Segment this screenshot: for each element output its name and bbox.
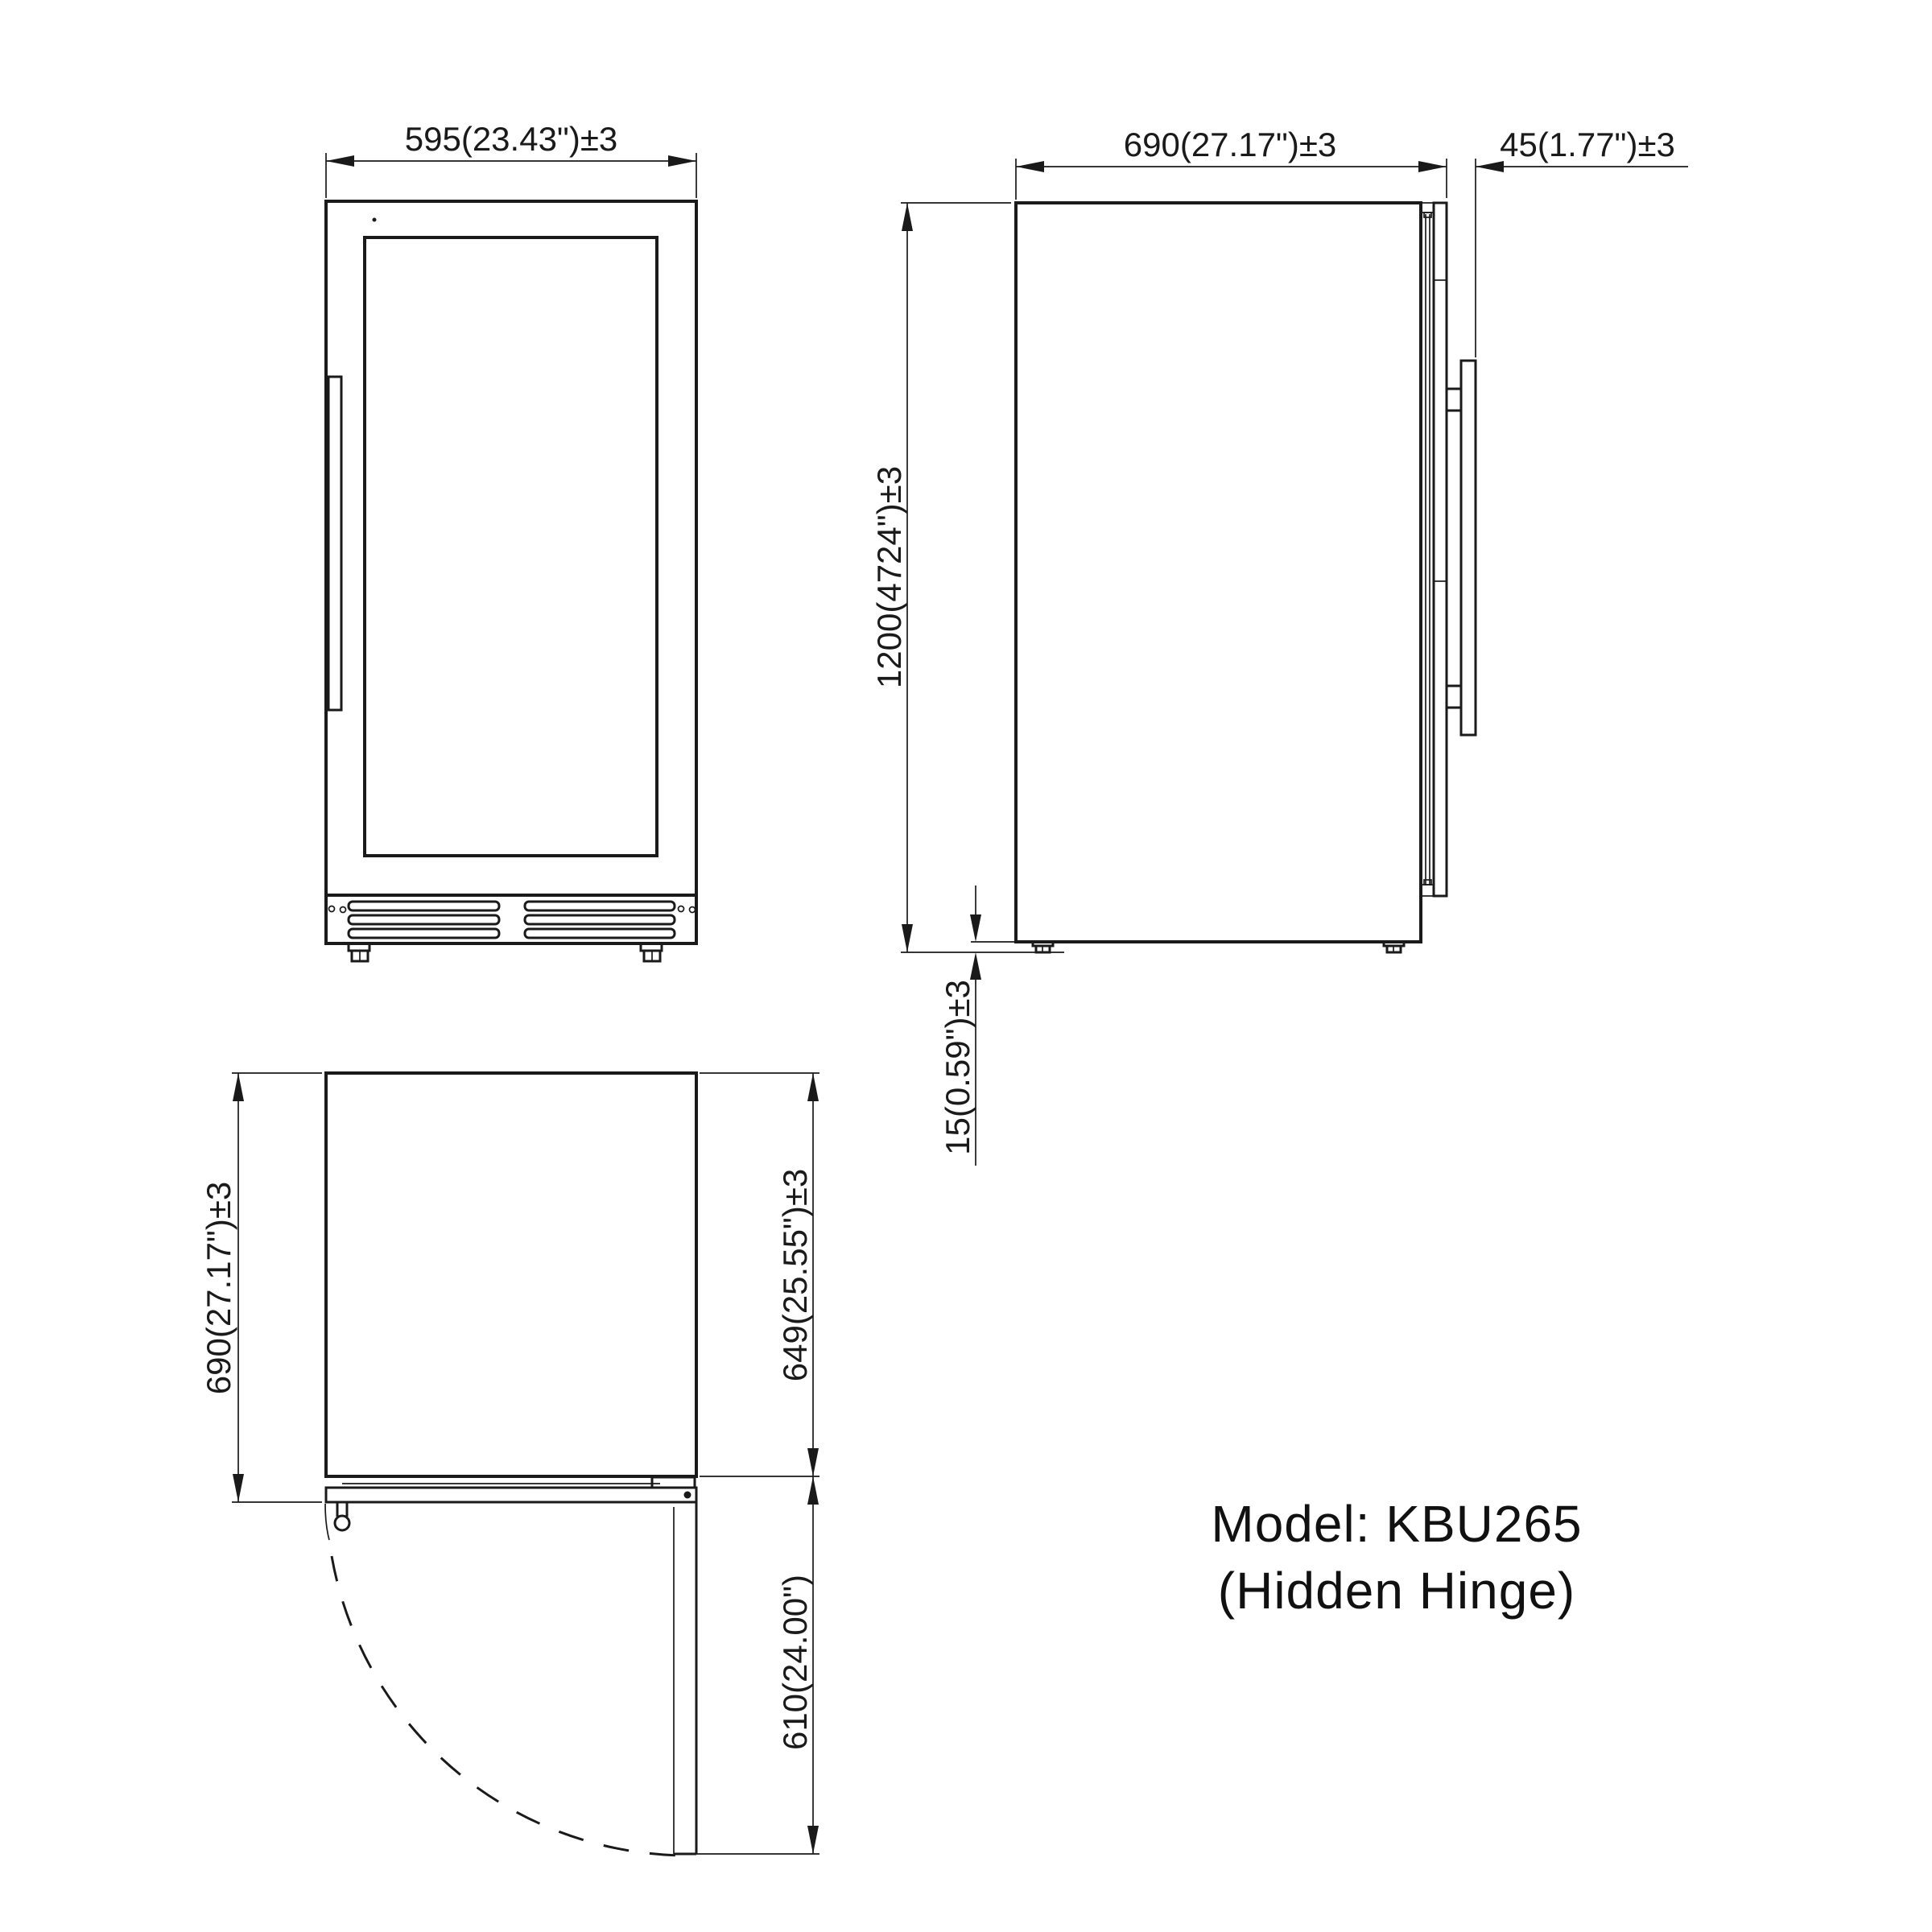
handle-bar [1461,361,1476,735]
model-title-line1: Model: KBU265 [1211,1495,1582,1553]
dimension-drawing: 595(23.43")±3 [0,0,1932,1932]
plan-depth-dimension: 690(27.17")±3 [200,1073,322,1502]
front-width-dimension: 595(23.43")±3 [326,120,696,198]
dim-arrow-top [807,1073,819,1101]
dim-arrow-top [233,1073,244,1101]
model-title-line2: (Hidden Hinge) [1218,1562,1575,1620]
handle-mount-top [1447,389,1461,411]
side-height-dimension: 1200(4724")±3 [870,203,1064,952]
front-width-dim-label: 595(23.43")±3 [405,120,617,158]
glass-door-frame [365,237,657,856]
side-foot-dim-label: 15(0.59")±3 [939,980,976,1155]
vent-slot [525,902,675,910]
screw [690,907,696,913]
door-swing-arc-start [325,1504,329,1540]
side-height-dim-label: 1200(4724")±3 [870,466,908,688]
screw [679,906,684,912]
title-block: Model: KBU265 (Hidden Hinge) [1211,1495,1582,1620]
side-depth-dim-label: 690(27.17")±3 [1124,126,1336,163]
reference-dot [373,218,377,222]
plan-view: 690(27.17")±3 649(25.55")±3 610(24.00") [200,1073,819,1856]
plan-cabinet-depth-dim-label: 649(25.55")±3 [776,1169,814,1381]
cabinet-plan-outline [326,1073,696,1476]
door-swing-arc [332,1556,688,1856]
dim-arrow-top [902,203,913,231]
cabinet-side-outline [1016,203,1421,942]
dim-arrow-lower [970,952,981,980]
vent-slot [349,902,499,910]
dim-arrow-upper [970,914,981,942]
vent-slot [525,929,675,938]
vent-slot [525,915,675,924]
dim-arrow-left [1016,161,1044,172]
hinge-block [1421,885,1434,896]
dim-arrow-bottom [807,1826,819,1854]
dim-arrow-right [1418,161,1447,172]
dim-arrow-left [326,155,354,167]
front-view: 595(23.43")±3 [326,120,696,961]
side-handle-dimension: 45(1.77")±3 [1476,126,1688,357]
open-door-outline [674,1502,696,1854]
technical-drawing-page: 595(23.43")±3 [0,0,1932,1932]
door-handle-plan [335,1502,349,1530]
dim-arrow-bottom [902,924,913,952]
plan-depth-dim-label: 690(27.17")±3 [200,1182,237,1394]
dim-arrow-top [807,1476,819,1505]
side-foot-dimension: 15(0.59")±3 [939,885,1014,1166]
hinge-block [1421,203,1434,213]
hinge-bracket [652,1477,695,1488]
hidden-hinge-top [1421,203,1434,217]
handle-mount-bottom [1447,686,1461,708]
vent-slot [349,915,499,924]
leveling-foot-right [641,943,662,961]
side-view: 690(27.17")±3 45(1.77")±3 1200(4724")±3 … [870,126,1688,1166]
door-side-profile [1434,203,1447,896]
handle-knob [335,1516,349,1530]
door-handle [328,377,341,710]
hinge-pivot-dot [684,1492,691,1499]
door-handle-side [1447,361,1476,735]
hidden-hinge-plan [652,1477,695,1499]
side-depth-dimension: 690(27.17")±3 [1016,126,1447,200]
dim-arrow-bottom [807,1448,819,1476]
screw [329,906,335,912]
hidden-hinge-bottom [1421,880,1434,896]
door-plan-profile [326,1488,696,1502]
plan-door-swing-dim-label: 610(24.00") [776,1575,814,1750]
vent-slot [349,929,499,938]
side-handle-dim-label: 45(1.77")±3 [1500,126,1675,163]
leveling-foot-left [349,943,369,961]
cabinet-outline [326,201,696,943]
screw [341,907,346,913]
plan-door-swing-dimension: 610(24.00") [691,1476,819,1854]
dim-arrow-right [668,155,696,167]
plan-cabinet-depth-dimension: 649(25.55")±3 [700,1073,819,1476]
vent-grille [329,902,696,938]
dim-arrow-bottom [233,1474,244,1502]
